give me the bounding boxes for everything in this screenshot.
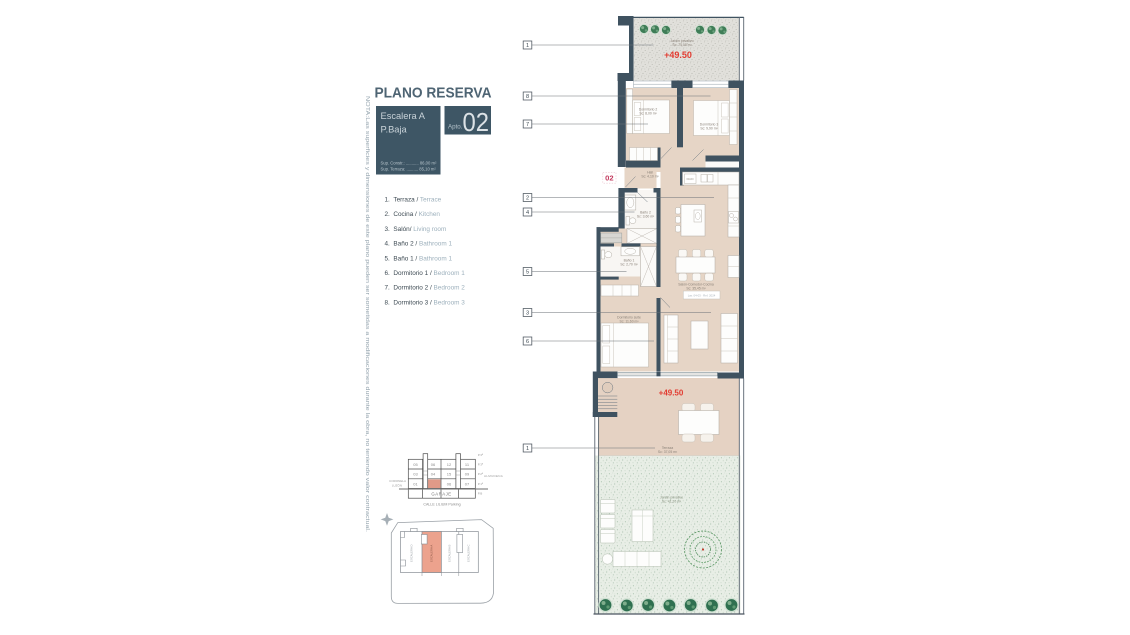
- svg-text:CALLE LILIUM Parking: CALLE LILIUM Parking: [423, 502, 460, 506]
- svg-text:Sc: 8,00 m²: Sc: 8,00 m²: [639, 112, 657, 116]
- svg-text:12: 12: [447, 462, 452, 467]
- svg-text:7. Dormitorio 2 / Bedroom 2: 7. Dormitorio 2 / Bedroom 2: [385, 285, 466, 292]
- svg-text:Escalera A: Escalera A: [381, 111, 426, 121]
- svg-text:LUZÓN: LUZÓN: [392, 483, 402, 488]
- svg-text:05: 05: [413, 462, 418, 467]
- svg-text:6: 6: [526, 339, 529, 345]
- svg-text:Sc: 3,60 m²: Sc: 3,60 m²: [637, 215, 655, 219]
- svg-text:+49.50: +49.50: [664, 50, 692, 60]
- svg-text:02: 02: [463, 107, 490, 137]
- svg-text:Lav. 04-03 · Ref. 2024: Lav. 04-03 · Ref. 2024: [688, 293, 716, 297]
- svg-text:8: 8: [526, 94, 529, 100]
- svg-text:P.B: P.B: [478, 492, 482, 496]
- svg-text:ALMUDENA: ALMUDENA: [484, 474, 503, 478]
- svg-text:2. Cocina / Kitchen: 2. Cocina / Kitchen: [385, 211, 441, 218]
- svg-text:01: 01: [413, 481, 418, 486]
- svg-text:Sc: 35,45 m²: Sc: 35,45 m²: [686, 286, 706, 290]
- svg-text:5. Baño 1 / Bathroom 1: 5. Baño 1 / Bathroom 1: [385, 255, 453, 262]
- svg-text:Sc: 9,90 m²: Sc: 9,90 m²: [700, 127, 718, 131]
- svg-text:1: 1: [526, 43, 529, 49]
- svg-text:NOTA:Las superficies y dimensi: NOTA:Las superficies y dimensiones de es…: [364, 96, 370, 532]
- svg-text:8. Dormitorio 3 / Bedroom 3: 8. Dormitorio 3 / Bedroom 3: [385, 299, 466, 306]
- svg-text:2: 2: [526, 196, 529, 202]
- svg-text:Sc: 74,05 m²: Sc: 74,05 m²: [672, 43, 692, 47]
- svg-text:4. Baño 2 / Bathroom 1: 4. Baño 2 / Bathroom 1: [385, 241, 453, 248]
- svg-text:Sc: 4,10 m²: Sc: 4,10 m²: [641, 175, 659, 179]
- svg-text:ESCALERA D: ESCALERA D: [410, 544, 414, 562]
- svg-text:07: 07: [465, 481, 470, 486]
- svg-text:Apto.: Apto.: [448, 124, 463, 131]
- svg-text:GARAJE: GARAJE: [431, 492, 451, 497]
- svg-text:02: 02: [605, 173, 613, 182]
- svg-text:60x60: 60x60: [686, 177, 694, 181]
- svg-text:1: 1: [526, 446, 529, 452]
- svg-text:09: 09: [465, 472, 470, 477]
- svg-text:04: 04: [431, 472, 436, 477]
- svg-text:ESCALERA A: ESCALERA A: [430, 545, 434, 562]
- svg-text:15: 15: [447, 472, 452, 477]
- svg-text:P.Baja: P.Baja: [381, 125, 408, 135]
- svg-text:P.3ª: P.3ª: [478, 453, 484, 457]
- svg-text:P.2ª: P.2ª: [478, 472, 484, 476]
- svg-text:+49.50: +49.50: [659, 389, 684, 398]
- svg-text:CORONELA: CORONELA: [389, 479, 406, 483]
- svg-text:5: 5: [526, 270, 529, 276]
- svg-text:Sc: 37,05 m²: Sc: 37,05 m²: [658, 450, 678, 454]
- svg-text:PLANO RESERVA: PLANO RESERVA: [375, 86, 492, 102]
- svg-text:03: 03: [413, 472, 418, 477]
- svg-text:Sup. Terraza: .......... 85,10: Sup. Terraza: .......... 85,10 m²: [381, 167, 437, 172]
- svg-text:P.1ª: P.1ª: [478, 482, 484, 486]
- svg-text:7: 7: [526, 122, 529, 128]
- svg-text:P.3ª: P.3ª: [478, 463, 484, 467]
- svg-text:1. Terraza / Terrace: 1. Terraza / Terrace: [385, 197, 442, 204]
- svg-text:ESCALERA B: ESCALERA B: [448, 544, 452, 562]
- svg-text:Sc: 2,70 m²: Sc: 2,70 m²: [620, 263, 638, 267]
- svg-text:4: 4: [526, 210, 529, 216]
- svg-text:6. Dormitorio 1 / Bedroom 1: 6. Dormitorio 1 / Bedroom 1: [385, 270, 466, 277]
- svg-text:06: 06: [431, 462, 436, 467]
- svg-text:Sup. Constr.: ........... 86,0: Sup. Constr.: ........... 86,00 m²: [381, 161, 437, 166]
- svg-text:Sc: 41,20 m²: Sc: 41,20 m²: [662, 500, 682, 504]
- svg-text:3. Salón/ Living room: 3. Salón/ Living room: [385, 226, 447, 233]
- svg-text:3: 3: [526, 311, 529, 317]
- svg-text:ESCALERA C: ESCALERA C: [467, 544, 471, 562]
- svg-text:06: 06: [447, 481, 452, 486]
